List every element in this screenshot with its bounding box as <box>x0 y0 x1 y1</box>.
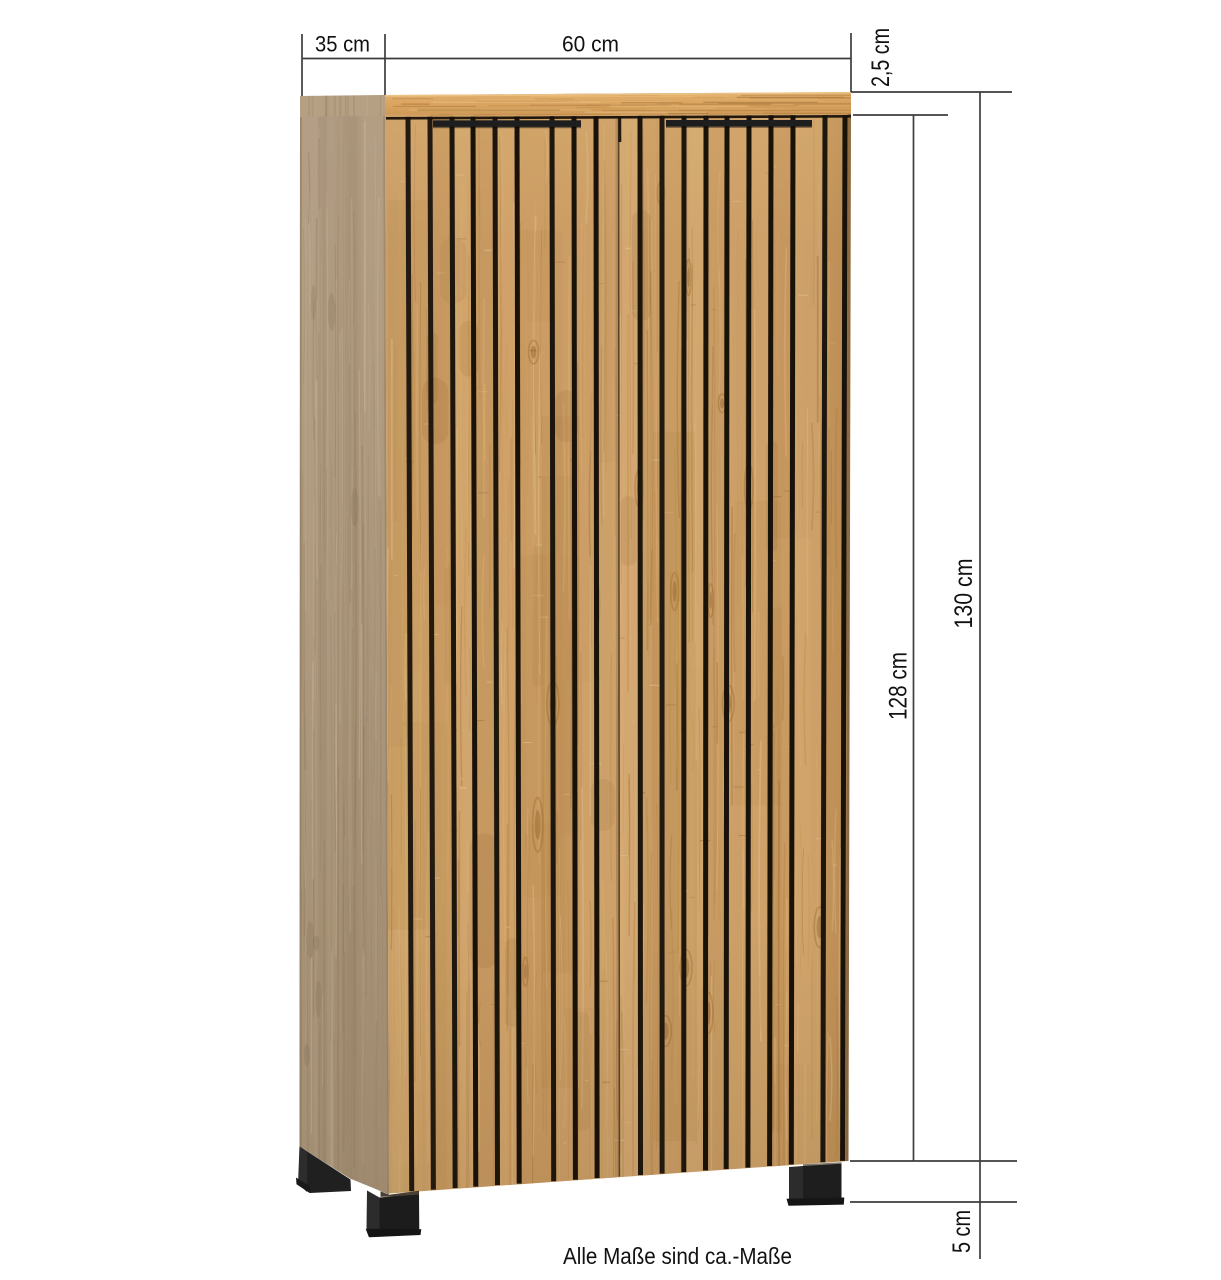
svg-text:Alle Maße sind ca.-Maße: Alle Maße sind ca.-Maße <box>563 1243 792 1269</box>
svg-text:130 cm: 130 cm <box>950 559 978 629</box>
svg-text:128 cm: 128 cm <box>885 652 913 720</box>
svg-text:2,5 cm: 2,5 cm <box>867 28 895 87</box>
svg-text:35 cm: 35 cm <box>315 32 370 57</box>
svg-text:60 cm: 60 cm <box>562 32 619 57</box>
svg-text:5 cm: 5 cm <box>948 1210 976 1253</box>
